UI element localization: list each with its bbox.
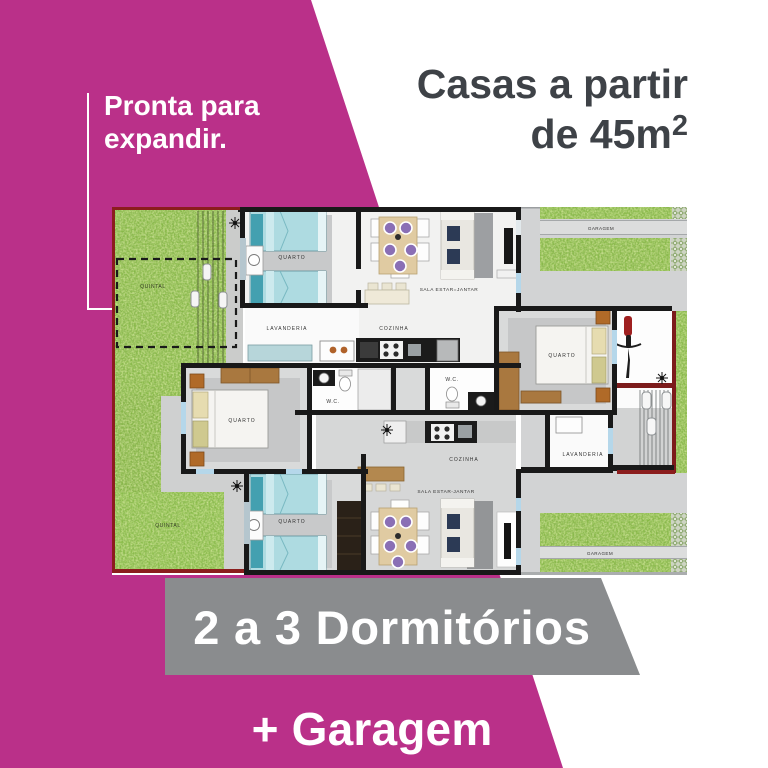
svg-text:QUARTO: QUARTO <box>278 255 305 261</box>
svg-text:GARAGEM: GARAGEM <box>587 551 613 556</box>
svg-text:QUARTO: QUARTO <box>548 353 575 359</box>
svg-text:W.C.: W.C. <box>445 377 458 383</box>
svg-text:QUARTO: QUARTO <box>228 418 255 424</box>
svg-text:SALA ESTAR=JANTAR: SALA ESTAR=JANTAR <box>420 287 479 293</box>
svg-text:LAVANDERIA: LAVANDERIA <box>563 452 604 458</box>
svg-text:GARAGEM: GARAGEM <box>588 226 614 231</box>
svg-text:LAVANDERIA: LAVANDERIA <box>267 326 308 332</box>
svg-text:QUARTO: QUARTO <box>278 519 305 525</box>
svg-text:SALA ESTAR-JANTAR: SALA ESTAR-JANTAR <box>417 489 474 495</box>
svg-text:W.C.: W.C. <box>326 399 339 405</box>
svg-text:COZINHA: COZINHA <box>449 457 479 463</box>
svg-text:QUINTAL: QUINTAL <box>140 284 166 290</box>
svg-text:COZINHA: COZINHA <box>379 326 409 332</box>
svg-text:QUINTAL: QUINTAL <box>155 523 181 529</box>
